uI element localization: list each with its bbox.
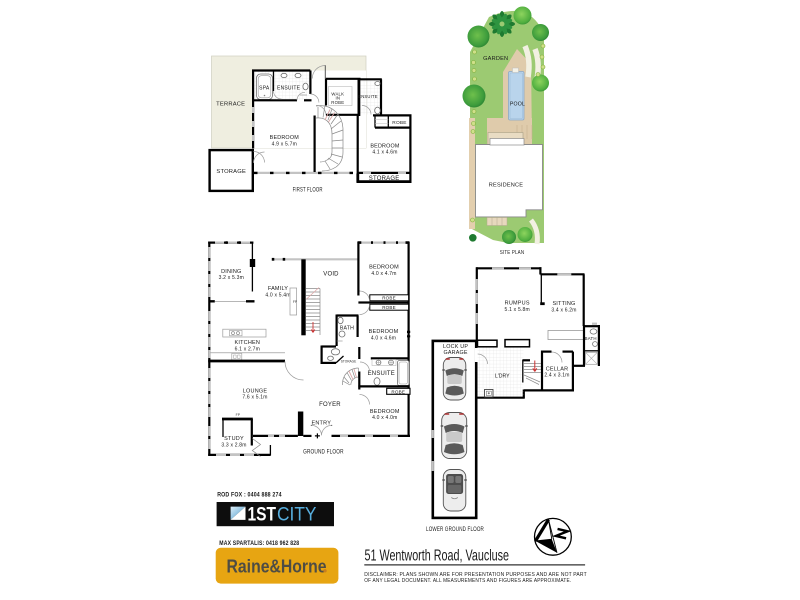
svg-text:4.9 x 5.7m: 4.9 x 5.7m <box>272 142 297 148</box>
svg-text:SITTING: SITTING <box>552 301 575 307</box>
svg-text:Raine&Horne: Raine&Horne <box>227 556 327 577</box>
svg-text:VOID: VOID <box>323 272 339 278</box>
svg-text:ROBE: ROBE <box>391 389 405 394</box>
svg-text:BEDROOM: BEDROOM <box>370 409 400 415</box>
svg-text:OF ANY LEGAL DOCUMENT. ALL MEA: OF ANY LEGAL DOCUMENT. ALL MEASUREMENTS … <box>364 578 571 584</box>
svg-text:SITE PLAN: SITE PLAN <box>500 250 525 256</box>
svg-text:ROBE: ROBE <box>382 305 396 310</box>
svg-text:FIRST FLOOR: FIRST FLOOR <box>293 187 323 194</box>
svg-text:LOWER GROUND FLOOR: LOWER GROUND FLOOR <box>426 526 484 533</box>
svg-text:CITY: CITY <box>277 503 317 525</box>
svg-text:51 Wentworth Road, Vaucluse: 51 Wentworth Road, Vaucluse <box>365 547 510 564</box>
svg-text:LOCK UP: LOCK UP <box>443 344 468 350</box>
svg-text:FAMILY: FAMILY <box>268 286 288 292</box>
svg-text:GARDEN: GARDEN <box>483 56 508 62</box>
svg-text:ENSUITE: ENSUITE <box>277 86 301 92</box>
svg-text:3.3 x 2.8m: 3.3 x 2.8m <box>221 443 246 449</box>
svg-text:STORAGE: STORAGE <box>341 359 357 363</box>
svg-text:TERRACE: TERRACE <box>216 102 245 108</box>
svg-text:FP: FP <box>236 413 241 417</box>
svg-text:BEDROOM: BEDROOM <box>270 135 300 141</box>
svg-text:ROD FOX : 0404 888 274: ROD FOX : 0404 888 274 <box>217 491 282 498</box>
svg-text:BEDROOM: BEDROOM <box>370 143 400 149</box>
svg-text:7.6 x 5.1m: 7.6 x 5.1m <box>242 395 267 401</box>
svg-text:ENSUITE: ENSUITE <box>358 94 378 99</box>
svg-text:STUDY: STUDY <box>224 436 244 442</box>
svg-text:3.2 x 5.3m: 3.2 x 5.3m <box>219 275 244 281</box>
svg-text:GARAGE: GARAGE <box>443 350 467 356</box>
svg-text:FOYER: FOYER <box>319 402 341 408</box>
svg-text:BEDROOM: BEDROOM <box>369 329 399 335</box>
svg-text:BEDROOM: BEDROOM <box>369 265 399 271</box>
svg-text:4.0 x 4.7m: 4.0 x 4.7m <box>371 271 396 277</box>
svg-text:BATH: BATH <box>585 336 597 341</box>
svg-text:4.0 x 4.0m: 4.0 x 4.0m <box>372 415 397 421</box>
svg-text:4.0 x 4.6m: 4.0 x 4.6m <box>371 335 396 341</box>
svg-text:GROUND FLOOR: GROUND FLOOR <box>303 449 344 456</box>
svg-text:CELLAR: CELLAR <box>546 366 569 372</box>
svg-text:STORAGE: STORAGE <box>369 176 400 182</box>
svg-text:3.4 x 6.2m: 3.4 x 6.2m <box>551 307 576 313</box>
svg-text:SPA: SPA <box>259 86 270 92</box>
svg-text:L'DRY: L'DRY <box>495 373 510 379</box>
svg-text:RESIDENCE: RESIDENCE <box>489 182 524 188</box>
svg-text:ENSUITE: ENSUITE <box>368 371 395 377</box>
svg-text:2.4 x 3.1m: 2.4 x 3.1m <box>544 373 569 379</box>
svg-text:ROBE: ROBE <box>382 296 396 301</box>
svg-text:KITCHEN: KITCHEN <box>235 340 261 346</box>
svg-text:DINING: DINING <box>221 269 241 275</box>
svg-text:4.1 x 4.6m: 4.1 x 4.6m <box>372 150 397 156</box>
svg-text:BATH: BATH <box>340 326 354 332</box>
svg-text:LOUNGE: LOUNGE <box>243 388 268 394</box>
svg-text:5.1 x 5.8m: 5.1 x 5.8m <box>505 307 530 313</box>
svg-text:FP: FP <box>293 300 298 304</box>
svg-text:RUMPUS: RUMPUS <box>505 301 530 307</box>
svg-text:POOL: POOL <box>510 102 525 108</box>
svg-text:1ST: 1ST <box>248 503 277 525</box>
svg-text:STORAGE: STORAGE <box>216 169 246 175</box>
svg-text:MAX SPARTALIS: 0418 962 828: MAX SPARTALIS: 0418 962 828 <box>219 540 299 547</box>
svg-text:ROBE: ROBE <box>392 120 406 126</box>
svg-text:ROBE: ROBE <box>331 100 344 105</box>
svg-text:4.0 x 5.4m: 4.0 x 5.4m <box>265 292 290 298</box>
svg-text:6.1 x 2.7m: 6.1 x 2.7m <box>235 347 260 353</box>
